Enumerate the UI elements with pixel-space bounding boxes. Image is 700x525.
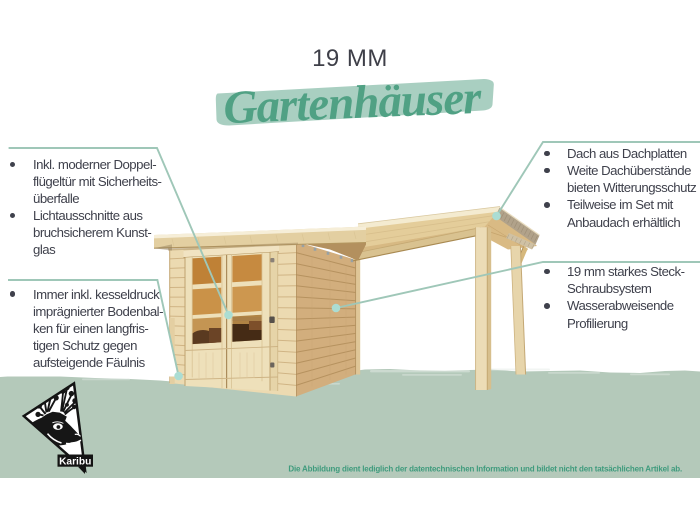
svg-text:19 MM: 19 MM: [312, 45, 388, 72]
svg-text:Gartenhäuser: Gartenhäuser: [223, 72, 484, 134]
svg-text:Die Abbildung dient lediglich: Die Abbildung dient lediglich der datent…: [288, 465, 682, 474]
svg-text:Karibu: Karibu: [59, 456, 91, 467]
